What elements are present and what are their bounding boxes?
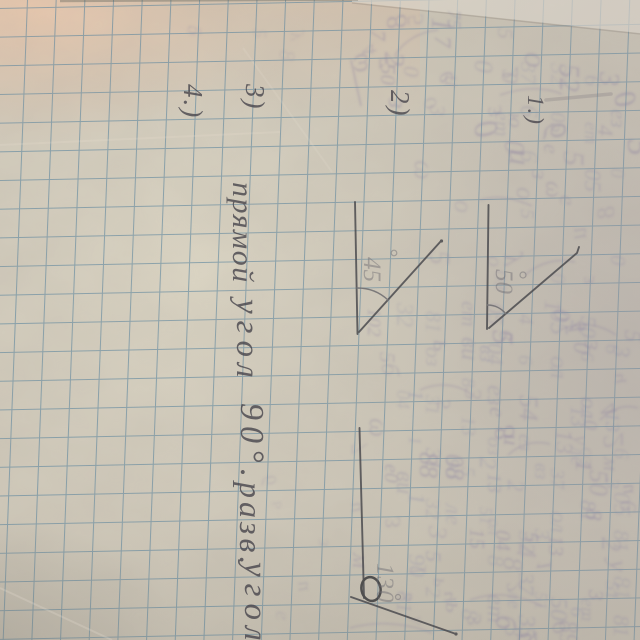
svg-text:em: em [457, 301, 482, 327]
svg-text:ле: ле [441, 502, 466, 525]
svg-text:угол: угол [229, 296, 265, 385]
svg-text:разв.: разв. [233, 480, 269, 568]
svg-text:о: о [483, 256, 508, 267]
svg-text:0: 0 [606, 255, 630, 266]
svg-text:13: 13 [457, 416, 479, 436]
svg-text:м: м [347, 552, 373, 568]
svg-text:е: е [554, 195, 580, 206]
svg-text:ь: ь [429, 578, 451, 587]
svg-text:81: 81 [421, 311, 446, 333]
svg-text:32: 32 [391, 302, 417, 327]
svg-text:3: 3 [530, 528, 554, 540]
svg-text:0: 0 [606, 168, 628, 178]
svg-text:1: 1 [405, 436, 425, 445]
svg-text:5: 5 [619, 330, 640, 342]
svg-text:2: 2 [566, 320, 591, 331]
svg-text:у: у [284, 30, 305, 41]
svg-text:оз: оз [483, 437, 507, 455]
svg-text:90: 90 [404, 554, 429, 578]
svg-text:0: 0 [546, 273, 570, 284]
svg-text:з: з [526, 169, 552, 179]
svg-text:и: и [289, 581, 313, 592]
svg-text:з: з [575, 275, 599, 284]
svg-text:6: 6 [609, 448, 634, 459]
svg-text:5: 5 [185, 26, 205, 35]
svg-text:5: 5 [375, 352, 400, 363]
svg-text:1: 1 [531, 560, 556, 571]
svg-text:0: 0 [469, 60, 498, 73]
svg-text:8: 8 [457, 378, 478, 388]
svg-text:em: em [490, 111, 515, 137]
svg-text:2: 2 [503, 480, 528, 492]
svg-text:45: 45 [358, 257, 385, 282]
svg-text:ω: ω [343, 53, 374, 73]
svg-text:90: 90 [441, 458, 463, 478]
svg-text:3: 3 [601, 478, 623, 489]
svg-text:51: 51 [531, 592, 551, 610]
svg-text:о: о [511, 187, 540, 200]
svg-text:3: 3 [425, 104, 450, 116]
svg-text:3): 3) [240, 83, 270, 111]
svg-text:з: з [314, 538, 335, 546]
svg-text:0: 0 [399, 66, 424, 77]
svg-text:05: 05 [580, 169, 605, 192]
svg-text:8: 8 [593, 206, 620, 219]
svg-text:89: 89 [554, 620, 583, 640]
svg-text:в: в [494, 330, 523, 341]
svg-text:о: о [449, 200, 478, 213]
svg-text:5: 5 [620, 139, 640, 156]
svg-text:50: 50 [376, 64, 400, 86]
svg-text:81: 81 [576, 500, 601, 522]
svg-text:ез: ез [606, 109, 631, 128]
svg-text:ез: ез [482, 385, 509, 406]
svg-text:5: 5 [516, 209, 538, 219]
svg-text:13: 13 [601, 412, 623, 432]
svg-text:у: у [604, 557, 633, 572]
svg-text:6: 6 [576, 352, 597, 362]
svg-text:3: 3 [423, 525, 452, 539]
svg-text:81: 81 [609, 615, 634, 637]
svg-text:8: 8 [483, 555, 508, 567]
svg-text:32: 32 [546, 62, 571, 86]
svg-text:81: 81 [609, 530, 634, 552]
svg-text:угол: угол [237, 559, 273, 640]
svg-text:50: 50 [490, 269, 517, 295]
svg-text:3: 3 [380, 516, 405, 528]
svg-text:ч: ч [606, 373, 631, 384]
svg-text:7: 7 [366, 30, 390, 42]
svg-text:1: 1 [404, 493, 429, 505]
svg-text:б: б [376, 363, 403, 377]
svg-text:51: 51 [476, 507, 496, 525]
svg-text:вз: вз [475, 345, 499, 362]
svg-text:6: 6 [514, 355, 536, 365]
svg-text:6: 6 [580, 75, 605, 86]
svg-text:51: 51 [601, 581, 622, 600]
svg-text:5: 5 [557, 151, 590, 166]
svg-text:8: 8 [457, 609, 482, 621]
svg-text:1: 1 [404, 390, 428, 401]
svg-text:8: 8 [381, 14, 413, 29]
svg-text:05: 05 [608, 492, 634, 516]
svg-text:13: 13 [566, 406, 590, 427]
svg-text:6: 6 [515, 150, 542, 163]
svg-text:6: 6 [601, 344, 623, 354]
svg-text:05: 05 [546, 112, 570, 133]
svg-text:1.): 1.) [523, 95, 548, 126]
svg-text:е: е [485, 407, 510, 417]
svg-text:2: 2 [474, 457, 500, 469]
svg-text:2: 2 [421, 587, 445, 598]
svg-text:em: em [580, 122, 601, 144]
svg-text:102: 102 [363, 308, 384, 337]
svg-text:5: 5 [493, 28, 518, 39]
svg-text:ле: ле [503, 590, 524, 608]
svg-text:ви: ви [391, 471, 418, 494]
svg-text:35: 35 [513, 614, 539, 639]
svg-text:оз: оз [421, 347, 446, 366]
svg-text:54: 54 [514, 395, 543, 421]
svg-text:прямой: прямой [226, 182, 259, 284]
svg-text:ол: ол [545, 356, 572, 379]
svg-text:13: 13 [483, 473, 505, 493]
svg-text:90°.: 90°. [233, 403, 270, 483]
svg-text:75: 75 [443, 10, 464, 29]
svg-text:ω: ω [364, 418, 394, 437]
svg-text:7: 7 [430, 36, 455, 49]
svg-text:6: 6 [566, 607, 588, 617]
svg-text:5: 5 [250, 29, 270, 38]
svg-text:37: 37 [516, 61, 541, 85]
svg-text:ω: ω [408, 160, 439, 180]
svg-text:4.): 4.) [178, 84, 208, 119]
svg-text:130: 130 [371, 563, 398, 604]
svg-text:4: 4 [514, 314, 538, 325]
svg-text:ез: ез [514, 434, 538, 451]
svg-text:ле: ле [566, 446, 588, 465]
svg-text:8: 8 [275, 50, 300, 61]
svg-text:2: 2 [597, 433, 630, 448]
svg-text:и: и [439, 75, 465, 87]
svg-text:2): 2) [385, 90, 415, 119]
svg-text:е: е [271, 611, 293, 620]
svg-text:и: и [565, 227, 592, 240]
svg-text:вз: вз [530, 463, 552, 479]
svg-text:5: 5 [423, 250, 456, 265]
